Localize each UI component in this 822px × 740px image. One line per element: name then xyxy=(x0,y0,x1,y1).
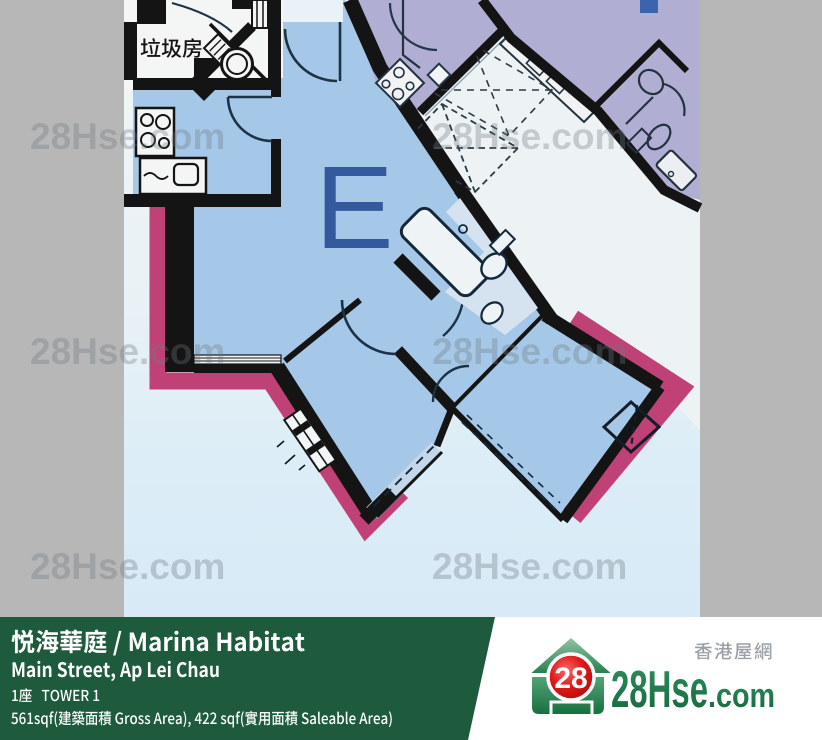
svg-text:28Hse: 28Hse xyxy=(611,661,708,719)
svg-text:.com: .com xyxy=(708,677,775,715)
svg-text:28Hse.com: 28Hse.com xyxy=(432,116,627,157)
svg-text:28Hse.com: 28Hse.com xyxy=(30,546,225,587)
svg-text:28Hse.com: 28Hse.com xyxy=(30,331,225,372)
svg-text:28: 28 xyxy=(554,662,587,695)
svg-text:E: E xyxy=(315,142,394,274)
svg-text:28Hse.com: 28Hse.com xyxy=(432,331,627,372)
svg-text:28Hse.com: 28Hse.com xyxy=(30,116,225,157)
svg-text:28Hse.com: 28Hse.com xyxy=(432,546,627,587)
